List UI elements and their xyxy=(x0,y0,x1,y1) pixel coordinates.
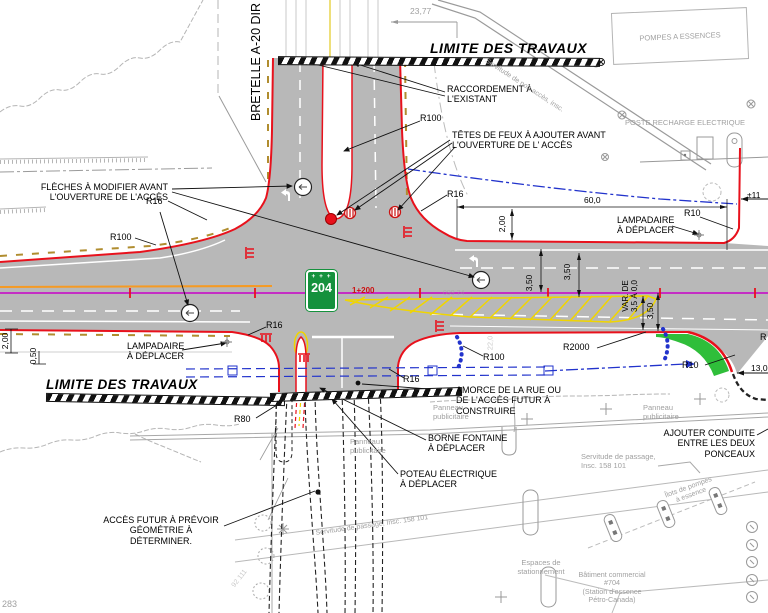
radius-r100-top: R100 xyxy=(420,113,442,123)
radius-r10-ne: R10 xyxy=(684,208,701,218)
note-borne-fontaine: BORNE FONTAINE À DÉPLACER xyxy=(428,433,507,454)
note-acces-futur: ACCÈS FUTUR À PRÉVOIR GÉOMÉTRIE À DÉTERM… xyxy=(98,515,224,546)
dim-350-b: 3,50 xyxy=(563,264,573,281)
note-ajouter-conduite: AJOUTER CONDUITE ENTRE LES DEUX PONCEAUX xyxy=(663,428,755,459)
billboard-label-2: Panneau publicitaire xyxy=(433,404,469,421)
note-tetes-de-feux: TÊTES DE FEUX À AJOUTER AVANT L'OUVERTUR… xyxy=(452,130,606,151)
dim-13: 13,0 xyxy=(751,364,768,374)
note-amorce: AMORCE DE LA RUE OU DE L'ACCÈS FUTUR À C… xyxy=(456,385,561,416)
radius-r80: R80 xyxy=(234,414,251,424)
ramp-label: BRETELLE A-20 DIR xyxy=(249,3,263,121)
radius-r16-ne: R16 xyxy=(447,189,464,199)
dim-22: 22,0 xyxy=(487,336,496,351)
radius-clipped: R xyxy=(760,332,767,342)
dim-350-c: 3,50 xyxy=(646,303,656,320)
radius-r2000: R2000 xyxy=(563,342,590,352)
dim-var: VAR. DE 3,5 À 0,0 xyxy=(621,280,639,312)
radius-r16-nw: R16 xyxy=(146,196,163,206)
servitude-passage-label-1: Servitude de passage, Insc. 158 101 xyxy=(581,453,656,470)
dim-350-a: 3,50 xyxy=(525,275,535,292)
dim-0-50: 0,50 xyxy=(29,348,39,365)
radius-r100-w: R100 xyxy=(110,232,132,242)
billboard-label-1: Panneau publicitaire xyxy=(643,404,679,421)
billboard-label-3: Panneau publicitaire xyxy=(350,438,386,455)
station-faint-label: 099 74 xyxy=(443,290,464,298)
engineering-plan: LIMITE DES TRAVAUX LIMITE DES TRAVAUX BR… xyxy=(0,0,768,613)
dim-23-77: 23,77 xyxy=(410,7,431,17)
work-limit-label-bottom: LIMITE DES TRAVAUX xyxy=(46,377,198,393)
note-lampadaire-gauche: LAMPADAIRE À DÉPLACER xyxy=(127,341,184,362)
dim-11: ±11 xyxy=(747,191,761,201)
parking-label: Espaces de stationnement xyxy=(505,559,577,576)
radius-r100-s: R100 xyxy=(483,352,505,362)
shield-number: 204 xyxy=(311,281,332,296)
dim-60: 60,0 xyxy=(584,196,601,206)
dim-2-est: 2,00 xyxy=(498,216,508,233)
radius-r10-se: R10 xyxy=(682,360,699,370)
route-204-shield: + + + 204 xyxy=(306,270,337,311)
radius-r16-s: R16 xyxy=(403,374,420,384)
work-limit-label-top: LIMITE DES TRAVAUX xyxy=(430,40,587,56)
note-poteau-electrique: POTEAU ÉLECTRIQUE À DÉPLACER xyxy=(400,469,497,490)
work-limit-bar-top xyxy=(278,56,600,67)
edge-note-283: 283 xyxy=(2,599,17,609)
charging-station-label: POSTE RECHARGE ELECTRIQUE xyxy=(625,119,745,128)
gas-pumps-label: POMPES A ESSENCES xyxy=(639,30,721,43)
gas-pumps-outline: POMPES A ESSENCES xyxy=(611,7,749,65)
chainage-label: 1+200 xyxy=(352,286,374,295)
radius-r16-sw: R16 xyxy=(266,320,283,330)
building-label: Bâtiment commercial #704 (Station d'esse… xyxy=(570,571,654,604)
dim-2-ouest: 2,00 xyxy=(1,333,11,350)
note-lampadaire-droit: LAMPADAIRE À DÉPLACER xyxy=(617,215,674,236)
